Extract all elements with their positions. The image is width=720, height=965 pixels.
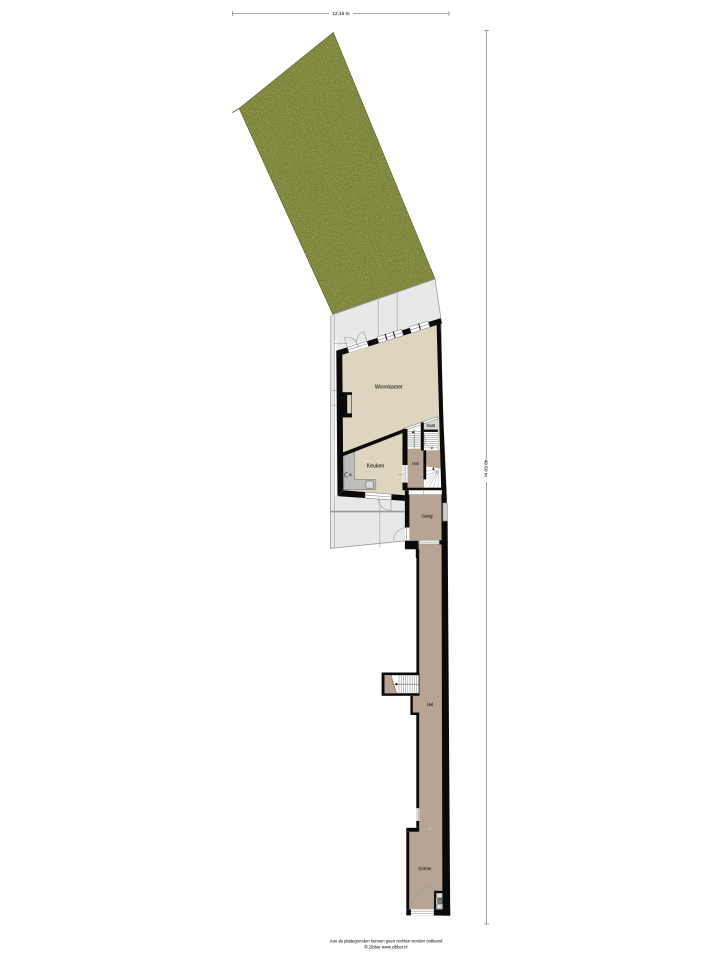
svg-text:Keuken: Keuken (367, 463, 385, 469)
svg-text:Gang: Gang (421, 514, 433, 519)
svg-text:12.15 m: 12.15 m (332, 11, 349, 17)
svg-text:Hal: Hal (427, 702, 433, 707)
svg-text:Woonkamer: Woonkamer (375, 385, 403, 391)
svg-text:49.50 m: 49.50 m (482, 460, 488, 477)
svg-text:Kast: Kast (427, 423, 436, 428)
svg-text:Aan de plattegronden kunnen ge: Aan de plattegronden kunnen geen rechten… (330, 939, 443, 944)
svg-text:Entree: Entree (418, 866, 431, 871)
svg-text:Hal: Hal (412, 461, 419, 466)
svg-text:© Zibber www.zibber.nl: © Zibber www.zibber.nl (365, 945, 408, 950)
